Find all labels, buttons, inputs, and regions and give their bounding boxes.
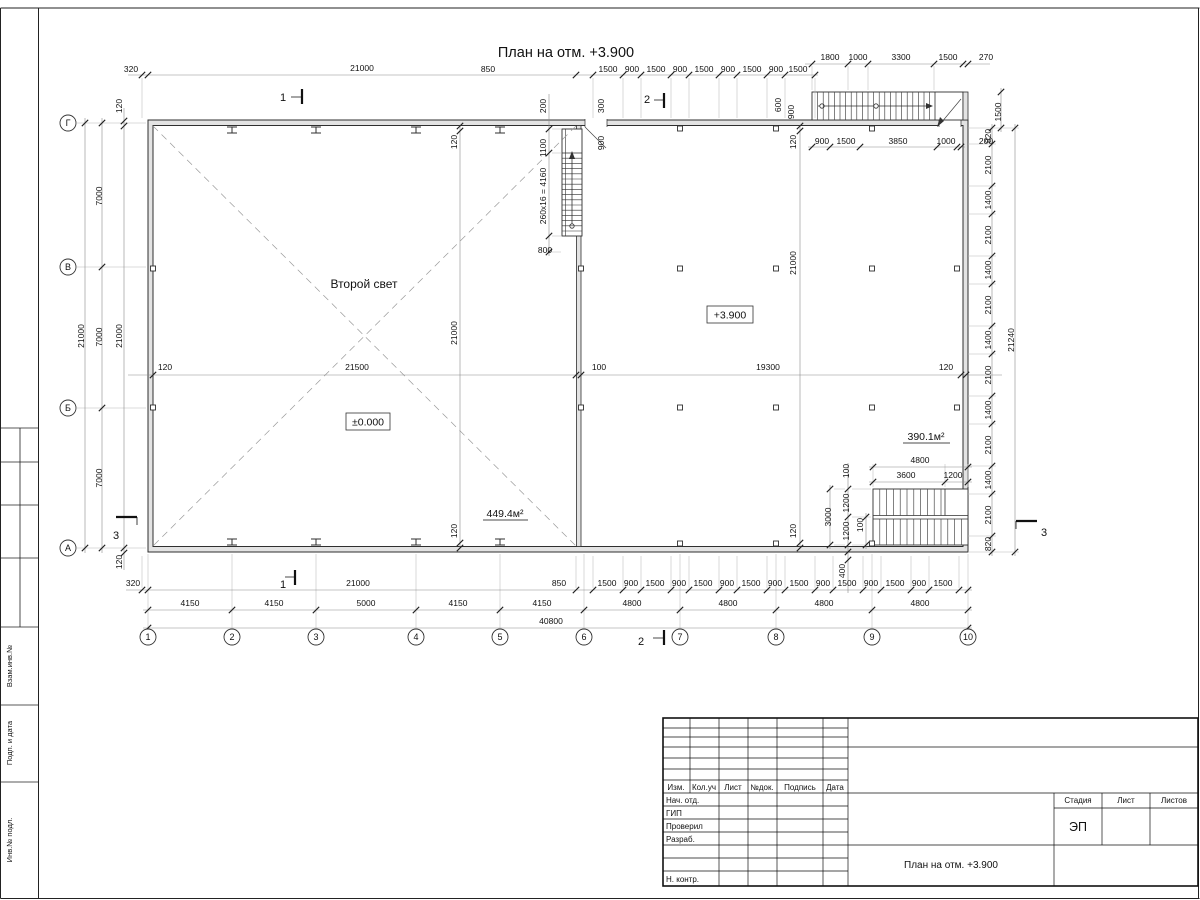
dim-label: 4800 [623,598,642,608]
dim-label: 100 [592,362,606,372]
dim-label: 4150 [181,598,200,608]
axis-number: 5 [497,632,502,642]
column-mark [151,405,156,410]
dim-label: 7000 [94,186,104,205]
frame-side-labels: Взам.инв.№ Подп. и дата Инв.№ подл. [5,645,14,862]
axis-number: 2 [229,632,234,642]
dim-label: 2100 [983,505,993,524]
tb-row-razrab: Разраб. [666,835,695,844]
dim-label: 120 [939,362,953,372]
dim-label: 21000 [449,321,459,345]
tb-col-podpis: Подпись [784,783,816,792]
dim-label: 5000 [357,598,376,608]
tb-list-col: Лист [1117,796,1135,805]
dim-label: 21500 [345,362,369,372]
dim-label: 21000 [346,578,370,588]
dim-label: 1500 [695,64,714,74]
section-mark-number: 2 [638,636,644,648]
column-mark [151,266,156,271]
column-mark [678,405,683,410]
dim-label: 120 [114,99,124,113]
dim-label: 3300 [892,52,911,62]
dim-label: 4800 [719,598,738,608]
dim-label: 1000 [849,52,868,62]
drawing-sheet: 3202100085015009001500900150090015009001… [0,0,1200,900]
column-mark [579,405,584,410]
floor-plan-svg: 3202100085015009001500900150090015009001… [0,0,1200,900]
column-mark [870,541,875,546]
dim-label: 320 [126,578,140,588]
elevation-upper: +3.900 [714,310,747,322]
section-mark-number: 2 [644,94,650,106]
dim-label: 1400 [983,400,993,419]
dim-label: 1500 [743,64,762,74]
tb-col-koluch: Кол.уч [692,783,716,792]
dim-label: 21000 [114,324,124,348]
dim-label: 260x16 = 4160 [538,167,548,224]
title-block: Изм. Кол.уч Лист №док. Подпись Дата Нач.… [663,718,1198,886]
dim-label: 1400 [983,190,993,209]
dim-label: 21000 [76,324,86,348]
tb-row-proveril: Проверил [666,822,703,831]
dim-label: 1500 [939,52,958,62]
building-walls [148,119,968,553]
dim-label: 1200 [944,470,963,480]
dim-label: 21000 [788,251,798,275]
section-mark-number: 1 [280,579,286,591]
dim-label: 1500 [934,578,953,588]
section-mark-number: 3 [1041,527,1047,539]
tb-row-gip: ГИП [666,809,682,818]
dim-label: 400 [837,564,847,578]
column-mark [678,126,683,131]
column-mark [678,266,683,271]
dim-label: 4800 [911,455,930,465]
dim-label: 900 [624,578,638,588]
tb-row-n-kontr: Н. контр. [666,875,699,884]
dim-label: 120 [449,524,459,538]
dim-label: 1500 [694,578,713,588]
dim-label: 900 [596,136,606,150]
dim-label: 1400 [983,260,993,279]
dim-label: 120 [449,135,459,149]
dim-label: 1000 [937,136,956,146]
axis-number: 3 [313,632,318,642]
dim-label: 120 [158,362,172,372]
dim-label: 1500 [837,136,856,146]
dim-label: 2100 [983,365,993,384]
dim-label: 100 [855,518,865,532]
axis-number: 9 [869,632,874,642]
column-mark [955,405,960,410]
axis-number: 8 [773,632,778,642]
dim-label: 2100 [983,435,993,454]
side-label-podp: Подп. и дата [5,720,14,765]
axis-number: 10 [963,632,973,642]
dim-label: 270 [979,52,993,62]
axis-letter: В [65,262,71,272]
dim-label: 40800 [539,616,563,626]
dim-label: 1100 [538,139,548,158]
axis-letter: Г [66,118,71,128]
tb-stage-value: ЭП [1069,820,1087,834]
dim-label: 1200 [841,521,851,540]
dim-label: 1500 [789,64,808,74]
axis-number: 7 [677,632,682,642]
dim-label: 4800 [911,598,930,608]
column-mark [774,266,779,271]
dim-label: 1500 [993,102,1003,121]
dim-label: 4150 [533,598,552,608]
dim-label: 1500 [598,578,617,588]
dim-label: 900 [864,578,878,588]
dim-label: 120 [788,524,798,538]
dim-label: 820 [983,129,993,143]
dim-label: 300 [596,99,606,113]
tb-col-ndok: №док. [750,783,773,792]
dim-label: 3000 [823,507,833,526]
dim-label: 900 [673,64,687,74]
dim-label: 850 [552,578,566,588]
axis-letter: Б [65,403,71,413]
dim-label: 2100 [983,155,993,174]
dim-label: 200 [538,99,548,113]
dim-label: 4150 [449,598,468,608]
dim-label: 900 [786,105,796,119]
column-mark [870,266,875,271]
dim-label: 900 [672,578,686,588]
tb-col-data: Дата [826,783,844,792]
dim-label: 2100 [983,225,993,244]
dim-label: 900 [769,64,783,74]
dim-label: 850 [481,64,495,74]
elevation-zero: ±0.000 [352,417,384,429]
dim-label: 4800 [815,598,834,608]
dim-label: 1500 [742,578,761,588]
dim-label: 1400 [983,330,993,349]
side-label-vzam: Взам.инв.№ [5,645,14,687]
column-mark [870,126,875,131]
column-mark [870,405,875,410]
dim-label: 600 [773,98,783,112]
dim-label: 1500 [790,578,809,588]
section-mark-number: 3 [113,530,119,542]
dim-label: 800 [538,245,552,255]
tb-row-nach-otd: Нач. отд. [666,796,699,805]
column-mark [678,541,683,546]
dim-label: 1500 [647,64,666,74]
column-mark [774,405,779,410]
column-mark [579,266,584,271]
column-mark [955,266,960,271]
axis-number: 4 [413,632,418,642]
drawing-title: План на отм. +3.900 [498,45,634,61]
dim-label: 900 [816,578,830,588]
dim-label: 1400 [983,470,993,489]
dim-label: 1800 [821,52,840,62]
area-left-label: 449.4м² [487,508,524,520]
dim-label: 1500 [886,578,905,588]
dim-label: 21240 [1006,328,1016,352]
column-mark [774,126,779,131]
dim-label: 2100 [983,295,993,314]
axis-number: 6 [581,632,586,642]
section-mark-number: 1 [280,92,286,104]
tb-listov-col: Листов [1161,796,1187,805]
tb-doc-title: План на отм. +3.900 [904,860,998,871]
dim-label: 4150 [265,598,284,608]
area-right-label: 390.1м² [908,431,945,443]
side-label-inv: Инв.№ подл. [5,818,14,863]
column-mark [774,541,779,546]
dim-label: 100 [841,464,851,478]
dim-label: 7000 [94,468,104,487]
tb-stage-col: Стадия [1064,796,1091,805]
dim-label: 120 [788,135,798,149]
dim-label: 19300 [756,362,780,372]
tb-col-list: Лист [724,783,742,792]
dim-label: 900 [768,578,782,588]
room-label-second-light: Второй свет [330,277,398,291]
dim-label: 1500 [838,578,857,588]
dim-label: 7000 [94,327,104,346]
dim-label: 900 [625,64,639,74]
dim-label: 1500 [646,578,665,588]
axis-number: 1 [145,632,150,642]
dim-label: 820 [983,537,993,551]
dim-label: 120 [114,555,124,569]
dim-label: 3600 [897,470,916,480]
dim-label: 900 [720,578,734,588]
dim-label: 320 [124,64,138,74]
tb-col-izm: Изм. [667,783,684,792]
dim-label: 900 [721,64,735,74]
axis-letter: А [65,543,71,553]
dim-label: 3850 [889,136,908,146]
dim-label: 21000 [350,63,374,73]
dim-label: 1200 [841,493,851,512]
dim-label: 900 [815,136,829,146]
dim-label: 900 [912,578,926,588]
dim-label: 1500 [599,64,618,74]
